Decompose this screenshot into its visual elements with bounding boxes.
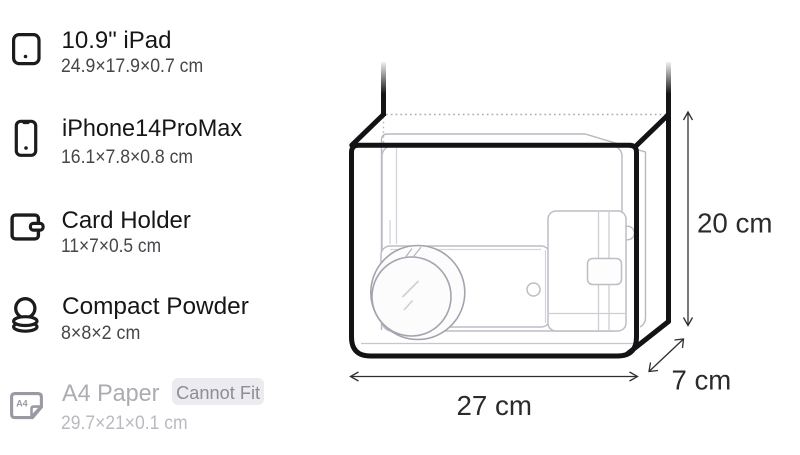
svg-text:20 cm: 20 cm — [697, 208, 773, 239]
svg-text:7 cm: 7 cm — [672, 365, 732, 396]
svg-text:27 cm: 27 cm — [457, 390, 533, 421]
